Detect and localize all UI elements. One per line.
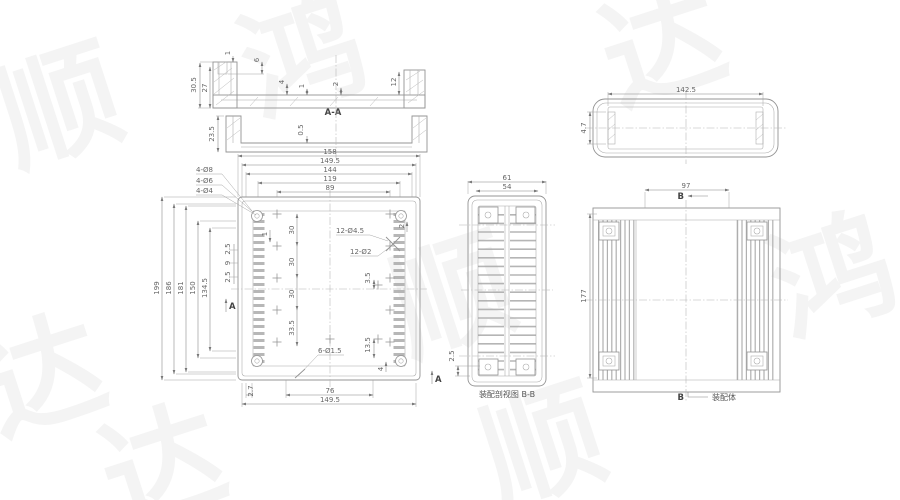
- dim-front-89: 89: [326, 184, 335, 192]
- section-marker-label: A: [229, 302, 236, 312]
- dim-assembly-97: 97: [682, 182, 691, 190]
- watermark-char: 顺: [0, 23, 139, 192]
- dim-assembly-177: 177: [580, 289, 588, 302]
- section-marker-b-bottom: B 装配体: [678, 392, 736, 403]
- dim-aa-total-height: 30.5: [190, 77, 198, 93]
- dim-lid-4-7: 4.7: [580, 122, 588, 133]
- note-12-d4-5: 12-Ø4.5: [336, 227, 364, 235]
- caption-assembly-section: 装配剖视图 B-B: [479, 389, 535, 399]
- front-left-dims: 199 186 181 150 134.5: [153, 197, 236, 380]
- dim-aa-lip: 1: [224, 51, 232, 55]
- dim-front-tooth-1: 1: [261, 232, 269, 236]
- technical-drawing: 顺 达 鸿 顺 达 鸿 顺 达 30.5 27: [0, 0, 900, 500]
- dim-aa-rib2: 1: [298, 84, 306, 88]
- caption-assembly-body: 装配体: [712, 392, 736, 402]
- dim-lid-142-5: 142.5: [676, 86, 696, 94]
- dim-front-9: 9: [224, 261, 232, 265]
- dim-aa-wall: 12: [390, 78, 398, 87]
- dim-front-134-5: 134.5: [201, 278, 209, 298]
- drawing-canvas: 顺 达 鸿 顺 达 鸿 顺 达 30.5 27: [0, 0, 900, 500]
- dim-front-33-5: 33.5: [288, 320, 296, 336]
- dim-front-30b: 30: [288, 258, 296, 267]
- dim-front-149-5: 149.5: [320, 157, 340, 165]
- dim-front-144: 144: [323, 166, 337, 174]
- dim-mid-61: 61: [503, 174, 512, 182]
- view-assembly: 97 177 B B 装配体: [580, 182, 788, 403]
- note-4-d6: 4-Ø6: [196, 177, 213, 185]
- watermark-char: 鸿: [755, 193, 900, 362]
- section-marker-a-left: A: [226, 299, 236, 312]
- dim-aa-notch: 6: [253, 57, 261, 62]
- section-label-aa: A-A: [325, 108, 342, 118]
- dim-aa-rib1: 4: [278, 79, 286, 84]
- watermark-char: 鸿: [225, 0, 382, 142]
- dim-front-149-5b: 149.5: [320, 396, 340, 404]
- dim-mid-54: 54: [503, 183, 512, 191]
- note-4-d8: 4-Ø8: [196, 166, 213, 174]
- watermark: 顺 达 鸿 顺 达 鸿 顺 达: [0, 0, 900, 500]
- dim-front-199: 199: [153, 281, 161, 294]
- section-marker-label: B: [678, 192, 684, 202]
- front-corner-notes: 4-Ø8 4-Ø6 4-Ø4: [196, 166, 256, 215]
- front-bottom-dims: 2.7 76 149.5: [242, 380, 416, 407]
- section-marker-label: A: [435, 375, 442, 385]
- section-marker-label: B: [678, 393, 684, 403]
- dim-lid-section-height: 23.5: [208, 126, 216, 142]
- dim-front-2-5b: 2.5: [224, 271, 232, 282]
- dim-front-158: 158: [323, 148, 336, 156]
- dim-front-30a: 30: [288, 226, 296, 235]
- dim-front-2-7: 2.7: [247, 385, 255, 396]
- dim-front-181: 181: [177, 281, 185, 294]
- dim-front-2-5a: 2.5: [224, 243, 232, 254]
- dim-front-76: 76: [326, 387, 335, 395]
- dim-front-4: 4: [377, 366, 385, 371]
- dim-aa-inner-height: 27: [201, 84, 209, 93]
- dim-front-30c: 30: [288, 290, 296, 299]
- note-4-d4: 4-Ø4: [196, 187, 213, 195]
- watermark-char: 顺: [465, 363, 622, 500]
- front-top-dims: 158 149.5 144 119 89: [238, 148, 420, 197]
- dim-front-150: 150: [189, 281, 197, 294]
- view-front: 158 149.5 144 119 89 199 186 181 150: [153, 148, 442, 407]
- dim-lid-section-base: 0.5: [297, 124, 305, 135]
- dim-front-edge-2: 2: [398, 224, 406, 228]
- note-6-d1-5: 6-Ø1.5: [318, 347, 342, 355]
- dim-front-186: 186: [165, 281, 173, 295]
- dim-front-119: 119: [323, 175, 336, 183]
- dim-front-13-5: 13.5: [364, 337, 372, 353]
- front-note-6-d1-5: 6-Ø1.5: [295, 347, 344, 378]
- dim-front-3-5: 3.5: [364, 272, 372, 283]
- note-12-d2: 12-Ø2: [350, 248, 371, 256]
- section-marker-b-top: B: [678, 192, 708, 202]
- dim-aa-base: 2: [332, 82, 340, 86]
- dim-mid-2-5: 2.5: [448, 350, 456, 361]
- corner-boss: [252, 211, 407, 367]
